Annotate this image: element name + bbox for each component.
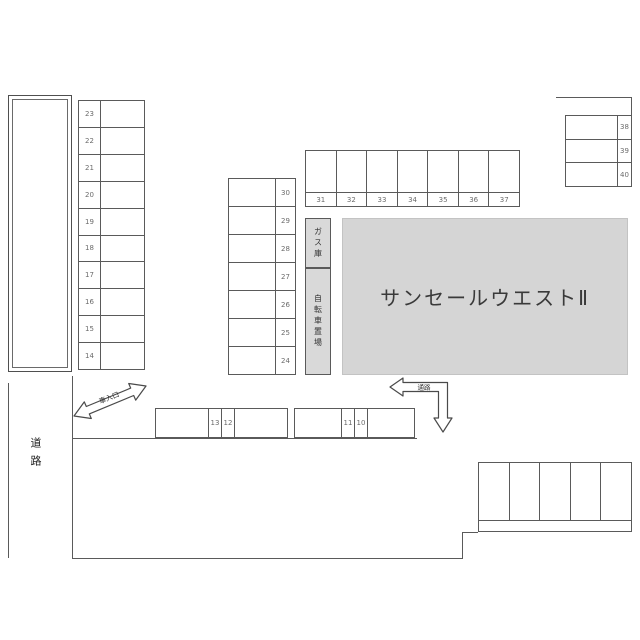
- stall-space: [101, 343, 144, 369]
- stall-number: 27: [275, 263, 295, 290]
- stall-pair-group-left: 1312: [155, 408, 288, 438]
- stall: 33: [367, 151, 398, 206]
- stall-column-middle: 30292827262524: [228, 178, 296, 375]
- stall: 20: [79, 182, 144, 209]
- stall-space: [101, 101, 144, 127]
- bicycle-parking-label: 自転車置場: [313, 294, 324, 349]
- stall-block-cells: [479, 463, 631, 520]
- stall: 15: [79, 316, 144, 343]
- stall-space: [229, 319, 275, 346]
- stall-space: [101, 236, 144, 262]
- stall-space: [428, 151, 458, 192]
- stall-number: 38: [617, 116, 631, 139]
- stall-block-bottom-right: [478, 462, 632, 532]
- stall: 28: [229, 235, 295, 263]
- stall-space: [101, 182, 144, 208]
- bicycle-parking-box: 自転車置場: [305, 268, 331, 375]
- stall-space: [229, 207, 275, 234]
- stall: 19: [79, 209, 144, 236]
- boundary-step-vertical: [462, 532, 463, 559]
- stall-space: [459, 151, 489, 192]
- left-structure-outline: [8, 95, 72, 372]
- stall-space: [101, 128, 144, 154]
- aisle-label: 通路: [418, 383, 432, 392]
- stall: 36: [459, 151, 490, 206]
- stall-number: 17: [79, 262, 101, 288]
- stall-space: [295, 409, 342, 437]
- car-entrance-arrow: 車入口: [68, 376, 152, 424]
- gas-storage-label: ガス庫: [313, 227, 324, 260]
- stall-number: 25: [275, 319, 295, 346]
- stall-space: [571, 463, 602, 520]
- stall: 37: [489, 151, 519, 206]
- stall-number: 36: [459, 192, 489, 206]
- stall-space: [229, 291, 275, 318]
- stall: 40: [566, 163, 631, 186]
- stall-number: 20: [79, 182, 101, 208]
- stall: 24: [229, 347, 295, 374]
- stall-number: 13: [209, 409, 222, 437]
- stall-space: [601, 463, 631, 520]
- stall-space: [337, 151, 367, 192]
- stall-number: 37: [489, 192, 519, 206]
- stall-space: [566, 140, 617, 163]
- stall-space: [566, 116, 617, 139]
- stall-number: 35: [428, 192, 458, 206]
- stall-space: [101, 155, 144, 181]
- stall: 39: [566, 140, 631, 164]
- stall-block-bottom-strip: [479, 520, 631, 531]
- stall-space: [489, 151, 519, 192]
- stall: 32: [337, 151, 368, 206]
- stall-number: 24: [275, 347, 295, 374]
- stall-number: 29: [275, 207, 295, 234]
- stall-row-top: 31323334353637: [305, 150, 520, 207]
- stall-space: [566, 163, 617, 186]
- stall-number: 23: [79, 101, 101, 127]
- stall-space: [306, 151, 336, 192]
- aisle-arrow: 通路: [386, 372, 462, 440]
- stall-space: [229, 263, 275, 290]
- stall-number: 14: [79, 343, 101, 369]
- stall-number: 11: [342, 409, 355, 437]
- building-block: サンセールウエストⅡ: [342, 218, 628, 375]
- stall: 22: [79, 128, 144, 155]
- stall: 18: [79, 236, 144, 263]
- stall: 21: [79, 155, 144, 182]
- stall: 38: [566, 116, 631, 140]
- stall: 26: [229, 291, 295, 319]
- stall-space: [479, 463, 510, 520]
- stall: 27: [229, 263, 295, 291]
- building-name: サンセールウエストⅡ: [380, 282, 590, 311]
- stall: 23: [79, 101, 144, 128]
- stall: 17: [79, 262, 144, 289]
- stall-number: 10: [355, 409, 368, 437]
- stall-space: [229, 347, 275, 374]
- stall-number: 30: [275, 179, 295, 206]
- stall-space: [229, 235, 275, 262]
- stall-number: 40: [617, 163, 631, 186]
- stall-column-right: 383940: [565, 115, 632, 187]
- stall-space: [101, 316, 144, 342]
- stall: 16: [79, 289, 144, 316]
- bottom-boundary-line: [72, 558, 462, 559]
- parking-lot-map: 23222120191817161514 30292827262524 3132…: [0, 0, 640, 640]
- stall-number: 15: [79, 316, 101, 342]
- stall-space: [367, 151, 397, 192]
- gas-storage-box: ガス庫: [305, 218, 331, 268]
- stall-number: 21: [79, 155, 101, 181]
- stall-space: [540, 463, 571, 520]
- stall-space: [101, 289, 144, 315]
- stall-space: [398, 151, 428, 192]
- boundary-step-horizontal: [462, 532, 478, 533]
- stall-number: 26: [275, 291, 295, 318]
- stall: 34: [398, 151, 429, 206]
- stall-number: 33: [367, 192, 397, 206]
- stall: 29: [229, 207, 295, 235]
- stall-space: [101, 262, 144, 288]
- stall-number: 32: [337, 192, 367, 206]
- right-boundary-line: [631, 97, 632, 116]
- stall-space: [229, 179, 275, 206]
- stall-number: 12: [222, 409, 235, 437]
- stall-number: 34: [398, 192, 428, 206]
- stall-space: [101, 209, 144, 235]
- stall: 31: [306, 151, 337, 206]
- driveway-baseline: [72, 438, 417, 439]
- stall: 14: [79, 343, 144, 369]
- left-structure-inner-line: [12, 99, 68, 368]
- road-left-edge-line: [8, 383, 9, 558]
- stall: 25: [229, 319, 295, 347]
- stall: 35: [428, 151, 459, 206]
- stall-column-left: 23222120191817161514: [78, 100, 145, 370]
- stall: 30: [229, 179, 295, 207]
- stall-space: [510, 463, 541, 520]
- stall-number: 16: [79, 289, 101, 315]
- stall-number: 39: [617, 140, 631, 163]
- road-label: 道路: [27, 437, 43, 473]
- stall-number: 22: [79, 128, 101, 154]
- stall-number: 19: [79, 209, 101, 235]
- stall-number: 18: [79, 236, 101, 262]
- stall-number: 31: [306, 192, 336, 206]
- stall-number: 28: [275, 235, 295, 262]
- stall-space: [156, 409, 209, 437]
- stall-space: [235, 409, 287, 437]
- top-right-boundary-line: [556, 97, 632, 98]
